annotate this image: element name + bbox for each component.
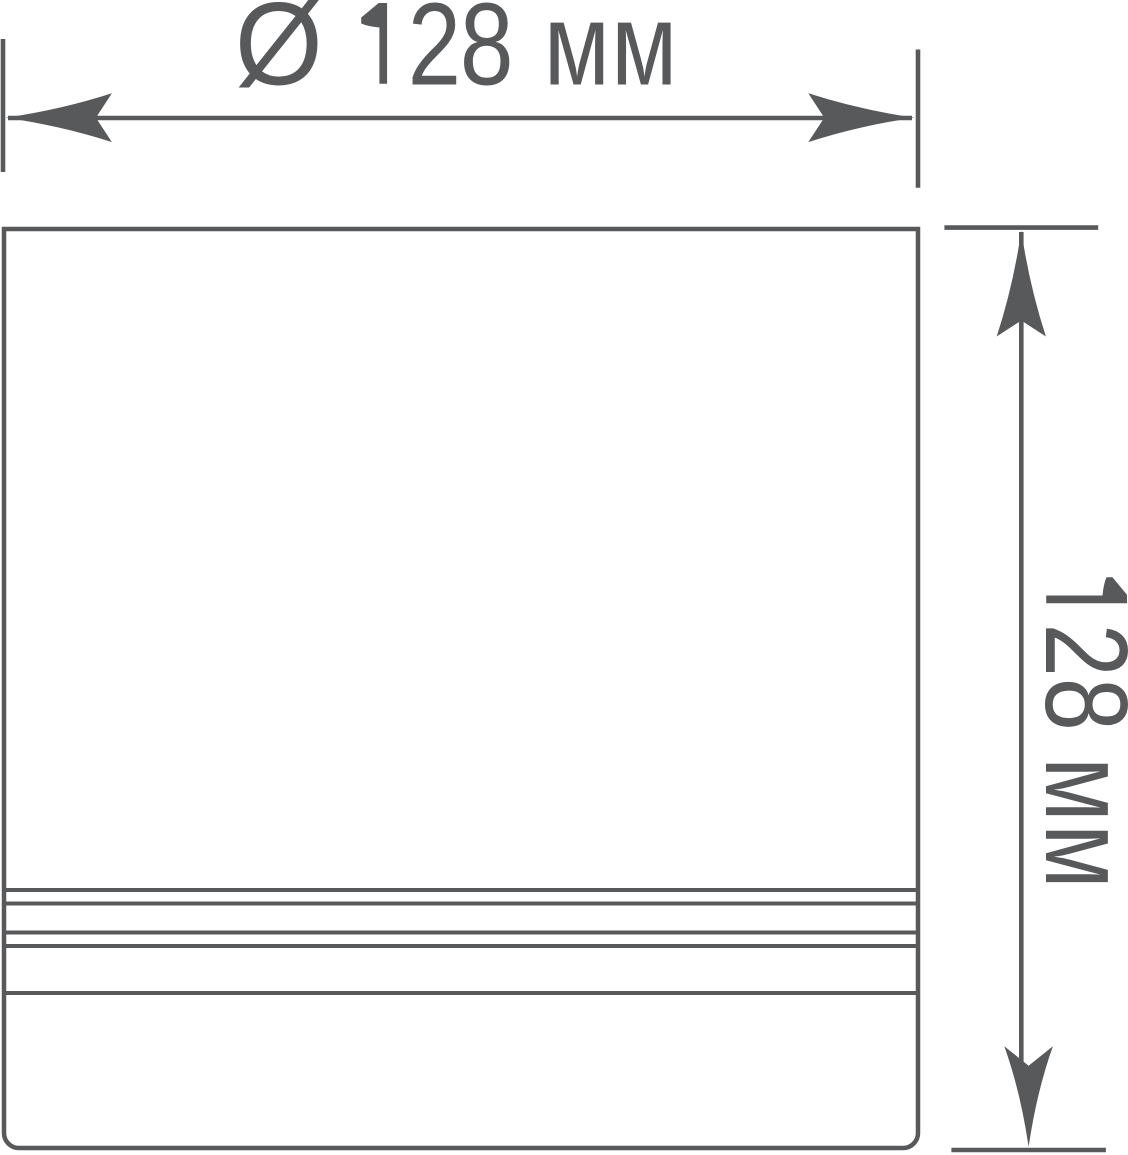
svg-text:8: 8 [1021, 678, 1128, 731]
svg-text:8: 8 [460, 0, 514, 110]
svg-text:м: м [1021, 824, 1128, 888]
svg-text:2: 2 [1021, 624, 1128, 677]
svg-text:м: м [544, 0, 610, 110]
svg-text:м: м [611, 0, 677, 110]
svg-text:Ø: Ø [235, 0, 323, 110]
svg-text:2: 2 [408, 0, 461, 110]
svg-text:м: м [1021, 757, 1128, 821]
